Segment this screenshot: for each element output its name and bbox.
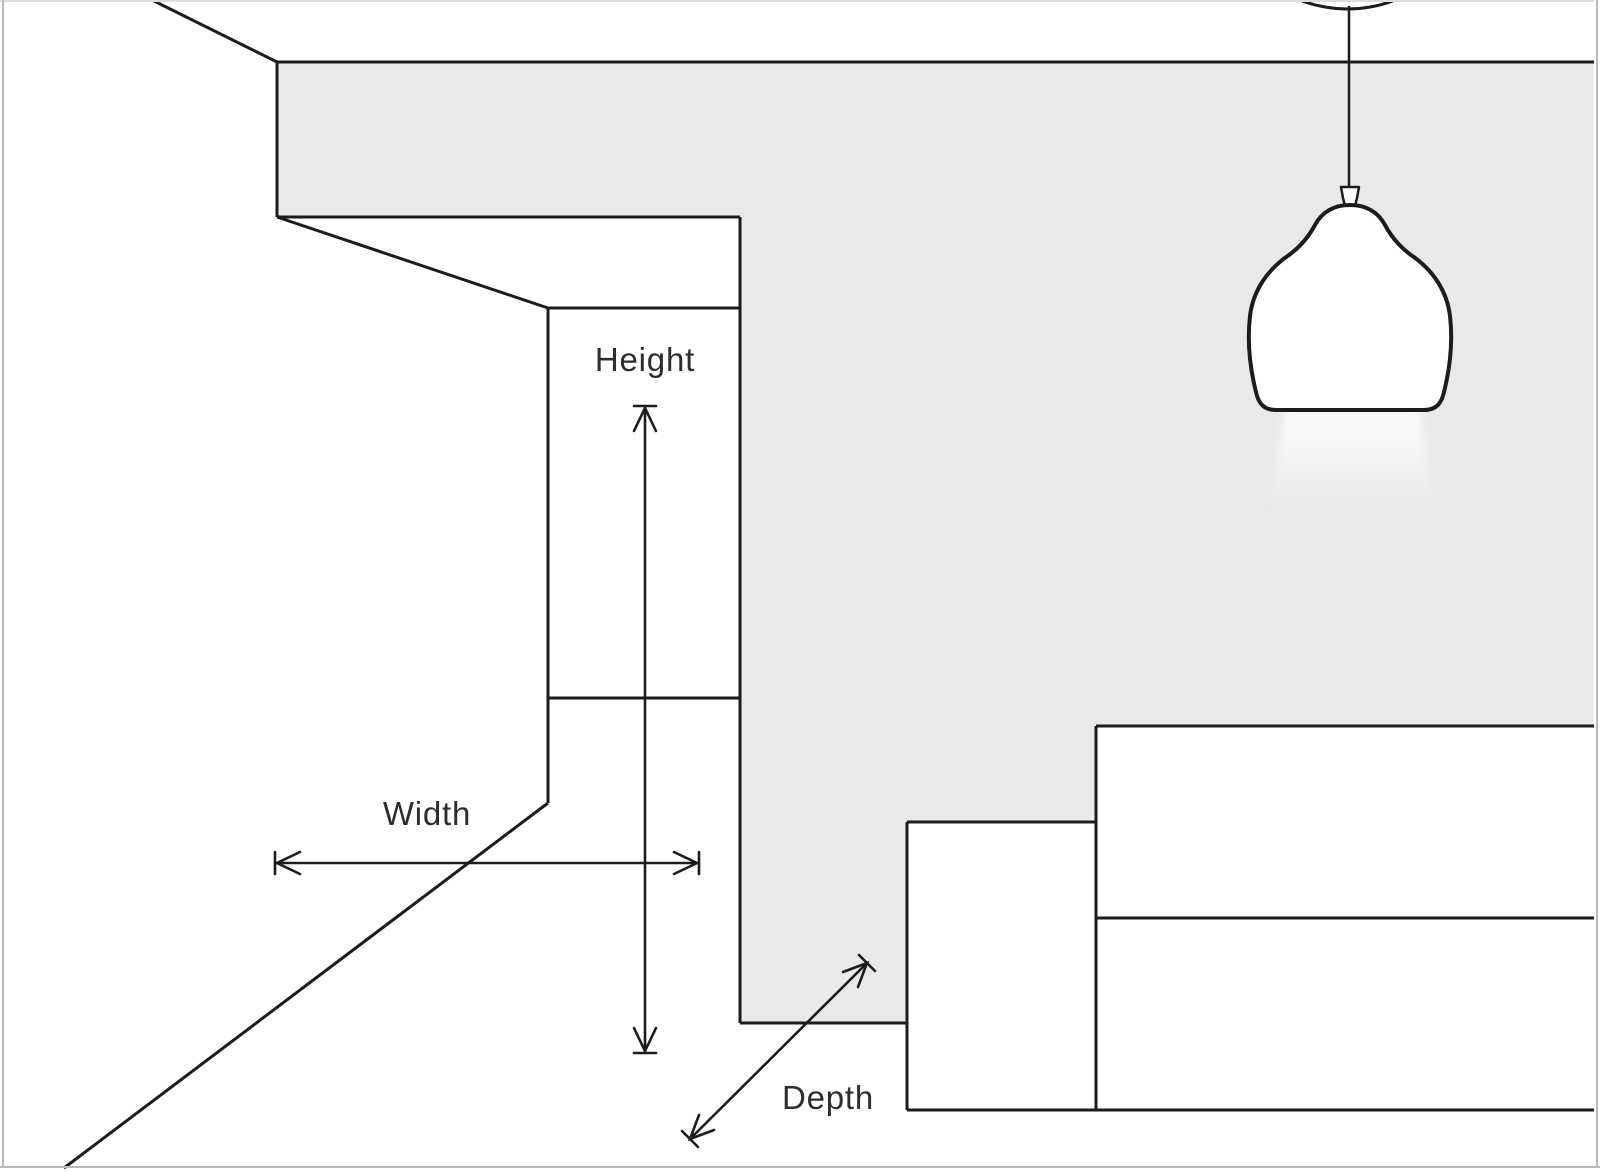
room-line-art [0,0,1600,1172]
width-label: Width [347,797,507,831]
back-wall [277,62,1594,1023]
cabinet-underside-diagonal [277,217,548,308]
ceiling-corner-line [152,0,277,62]
light-beam [1270,411,1433,507]
lamp-canopy-arc [1302,1,1393,9]
height-arrow [634,406,656,1053]
depth-label: Depth [748,1081,908,1115]
room-measurement-illustration: Height Width Depth [0,0,1600,1172]
height-label: Height [565,343,725,377]
width-arrow [275,852,699,874]
counter-front-diagonal [64,803,548,1168]
